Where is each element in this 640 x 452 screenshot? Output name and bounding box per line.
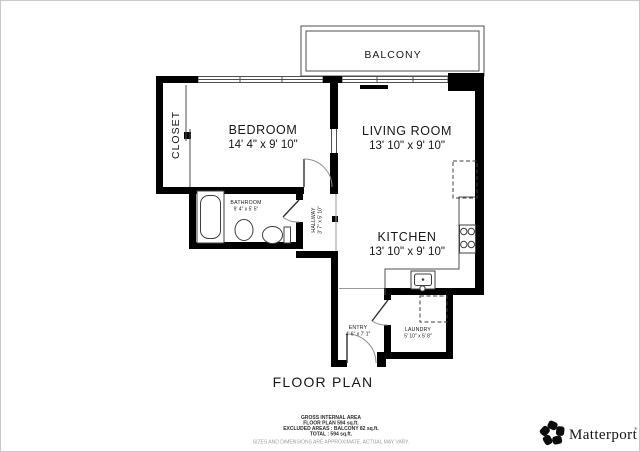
bathtub [197,191,224,243]
balcony-label: BALCONY [364,49,421,61]
kitchen-sink [411,271,435,291]
entry-label: ENTRY [349,325,368,331]
bedroom-door-swing [304,159,332,187]
toilet [263,227,291,244]
living-room-dimensions: 13' 10" x 9' 10" [369,140,445,152]
area-summary: GROSS INTERNAL AREA FLOOR PLAN 594 sq.ft… [253,415,410,446]
disclaimer-text: SIZES AND DIMENSIONS ARE APPROXIMATE, AC… [253,440,410,446]
laundry-dimensions: 5' 10" x 5' 8" [404,334,432,340]
closet-label: CLOSET [170,111,182,159]
bedroom-dimensions: 14' 4" x 9' 10" [228,139,297,151]
fridge-outline [453,161,477,198]
window-band-bedroom [198,76,323,83]
living-room-label: LIVING ROOM [362,124,452,138]
hallway-label: HALLWAY [311,207,317,233]
matterport-wordmark: Matterport [569,427,638,443]
bathroom-label: BATHROOM [230,200,261,206]
entry-dimensions: 4' 6" x 7' 1" [346,332,371,338]
stove [460,225,476,253]
kitchen-label: KITCHEN [377,230,436,244]
bathroom-door-swing [283,200,299,222]
registered-trademark-mark: ® [634,426,638,431]
page-title: FLOOR PLAN [273,374,374,390]
floor-plan-page: BALCONY BEDROOM 14' 4" x 9' 10" LIVING R… [0,0,640,452]
kitchen-dimensions: 13' 10" x 9' 10" [369,246,445,258]
hallway-dimensions: 3' 7" x 5' 10" [318,206,324,234]
bathroom-dimensions: 9' 4" x 5' 5" [234,207,259,213]
window-band-living [342,76,448,83]
divider-glazing [332,129,337,153]
floor-plan-canvas: BALCONY BEDROOM 14' 4" x 9' 10" LIVING R… [1,1,640,452]
washer-outline [420,296,447,322]
laundry-door-swing [372,300,388,325]
total-area-value: TOTAL : 594 sq.ft. [310,432,353,438]
bedroom-label: BEDROOM [229,123,298,137]
matterport-logo-icon [538,420,568,448]
entry-door-swing [347,334,376,363]
laundry-label: LAUNDRY [405,327,431,333]
bathroom-sink [235,220,253,241]
